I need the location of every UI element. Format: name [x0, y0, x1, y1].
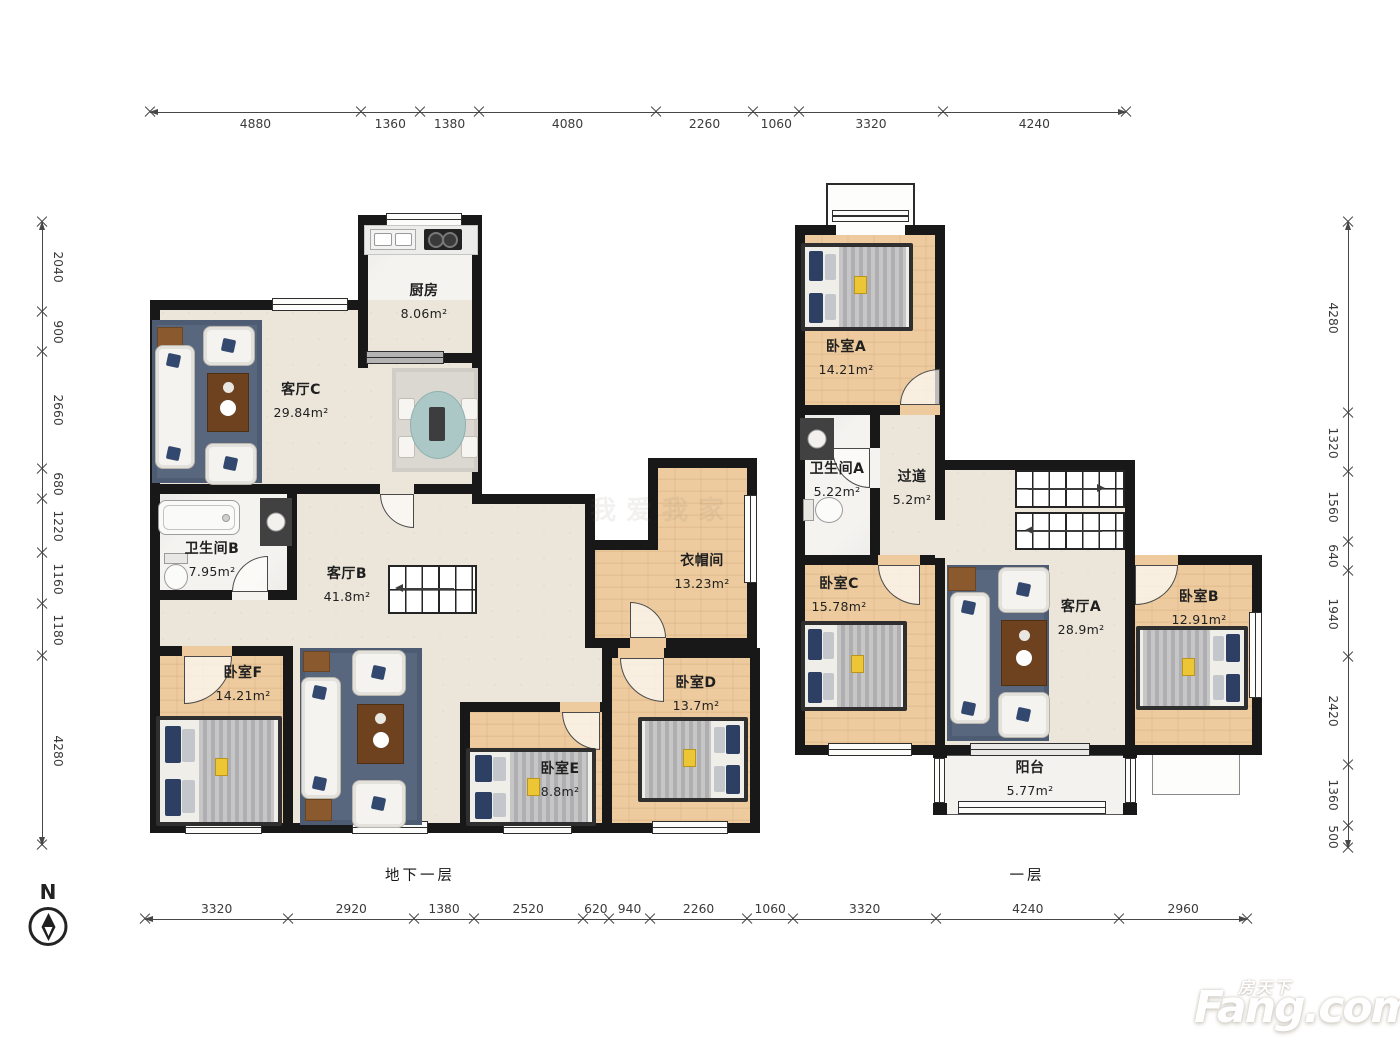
dimension-ruler-top: 48801360138040802260106033204240	[150, 94, 1126, 130]
dimension-tick	[281, 912, 295, 926]
dimension-label: 2040	[51, 251, 65, 282]
coffee-table	[207, 373, 249, 432]
coffee-table	[1001, 620, 1047, 686]
room-label-hallway: 过道5.2m²	[893, 466, 932, 507]
watermark: 我爱我家	[590, 490, 734, 527]
dimension-label: 1380	[428, 902, 459, 916]
sofa	[950, 592, 990, 724]
dimension-label: 900	[51, 320, 65, 343]
dining-table-center	[429, 407, 445, 441]
dimension-label: 2660	[51, 395, 65, 426]
window	[828, 743, 912, 756]
fang-logo: 房天下 Fang.com	[1192, 974, 1398, 1046]
floor-caption-first: 一层	[1010, 864, 1045, 885]
wall	[648, 458, 757, 468]
armchair	[203, 326, 255, 366]
dimension-label: 2520	[512, 902, 543, 916]
balcony-door-window	[970, 743, 1090, 756]
bay-opening	[836, 225, 905, 235]
dimension-tick	[472, 105, 486, 119]
balcony-post	[1123, 747, 1137, 758]
wall	[602, 648, 612, 833]
wall	[1125, 745, 1262, 755]
dimension-tick	[740, 912, 754, 926]
window-pass	[366, 351, 444, 364]
dimension-label: 1060	[755, 902, 786, 916]
wall	[283, 646, 293, 833]
bay-window-sill	[832, 210, 909, 222]
dimension-tick	[35, 597, 49, 611]
wall	[1125, 460, 1135, 755]
dimension-arrow	[1345, 840, 1351, 849]
dimension-label: 4240	[1019, 117, 1050, 131]
door-opening	[182, 646, 232, 656]
balcony-window	[1125, 758, 1136, 803]
bed	[1136, 626, 1248, 710]
dimension-tick	[35, 305, 49, 319]
dimension-tick	[792, 105, 806, 119]
balcony-post	[933, 803, 947, 815]
toilet	[803, 496, 843, 522]
armchair	[998, 692, 1050, 738]
terrace	[1152, 752, 1240, 795]
room-label-bedroom-d: 卧室D13.7m²	[673, 672, 720, 713]
dimension-tick	[413, 105, 427, 119]
dimension-arrow	[144, 916, 153, 922]
wall	[935, 558, 945, 755]
dimension-label: 4280	[1326, 302, 1340, 333]
dimension-line	[150, 112, 1126, 113]
door-opening	[900, 405, 940, 415]
bed	[801, 243, 913, 331]
wall	[585, 638, 757, 648]
room-label-bath-a: 卫生间A5.22m²	[810, 458, 865, 499]
dimension-ruler-right: 428013201560640194024201360500	[1330, 222, 1366, 848]
stair-arrow	[402, 588, 454, 590]
dimension-label: 1360	[1326, 780, 1340, 811]
north-label: N	[26, 880, 70, 904]
dimension-tick	[35, 345, 49, 359]
dimension-tick	[407, 912, 421, 926]
stove	[424, 229, 462, 250]
window	[1249, 612, 1262, 698]
wall	[870, 415, 880, 565]
dimension-tick	[1341, 819, 1355, 833]
dimension-tick	[1341, 758, 1355, 772]
wall	[750, 648, 760, 833]
room-label-bedroom-a: 卧室A14.21m²	[818, 336, 873, 377]
sofa	[155, 345, 195, 469]
dimension-tick	[746, 105, 760, 119]
window	[652, 821, 728, 834]
dimension-arrow	[39, 221, 45, 230]
room-label-cloakroom: 衣帽间13.23m²	[674, 550, 729, 591]
compass-needle-icon	[40, 913, 56, 941]
dimension-label: 4280	[51, 735, 65, 766]
dimension-ruler-left: 204090026606801220116011804280	[24, 222, 60, 845]
dimension-label: 1360	[375, 117, 406, 131]
side-table	[305, 799, 332, 821]
door-opening	[870, 448, 880, 488]
dimension-arrow	[39, 837, 45, 846]
washbasin	[800, 418, 834, 460]
dimension-tick	[1112, 912, 1126, 926]
dimension-tick	[929, 912, 943, 926]
bed	[156, 716, 282, 826]
dining-chair	[461, 436, 478, 458]
bathtub	[158, 500, 240, 535]
dimension-label: 2960	[1167, 902, 1198, 916]
armchair	[998, 567, 1050, 613]
dimension-label: 640	[1326, 544, 1340, 567]
room-label-bedroom-c: 卧室C15.78m²	[811, 573, 866, 614]
dimension-label: 3320	[849, 902, 880, 916]
wall	[150, 590, 297, 600]
dimension-tick	[35, 492, 49, 506]
dimension-label: 1160	[51, 563, 65, 594]
dimension-tick	[649, 105, 663, 119]
dimension-tick	[35, 462, 49, 476]
room-label-bedroom-b: 卧室B12.91m²	[1171, 586, 1226, 627]
dimension-arrow	[1345, 221, 1351, 230]
north-compass: N	[26, 880, 70, 950]
dimension-label: 2260	[683, 902, 714, 916]
room-label-kitchen: 厨房8.06m²	[401, 280, 448, 321]
dimension-label: 1180	[51, 614, 65, 645]
dimension-label: 1940	[1326, 598, 1340, 629]
armchair	[205, 443, 257, 485]
room-label-living-c: 客厅C29.84m²	[273, 379, 328, 420]
window	[272, 298, 348, 311]
dimension-tick	[786, 912, 800, 926]
bed	[638, 717, 748, 802]
dimension-tick	[936, 105, 950, 119]
dimension-tick	[35, 649, 49, 663]
wall	[482, 494, 595, 504]
side-table	[303, 651, 330, 672]
dimension-tick	[354, 105, 368, 119]
door-opening	[630, 638, 666, 648]
window	[744, 495, 757, 583]
dimension-line	[145, 919, 1247, 920]
floor-caption-basement: 地下一层	[385, 864, 455, 885]
balcony-post	[933, 747, 947, 758]
dimension-label: 4080	[552, 117, 583, 131]
bed	[801, 621, 907, 711]
sofa	[301, 677, 341, 799]
dimension-label: 4880	[240, 117, 271, 131]
dimension-ruler-bottom: 3320292013802520620940226010603320424029…	[145, 901, 1247, 937]
dimension-label: 680	[51, 472, 65, 495]
side-table	[948, 567, 976, 591]
dimension-arrow	[149, 109, 158, 115]
dimension-label: 620	[584, 902, 607, 916]
dimension-label: 1320	[1326, 427, 1340, 458]
dimension-label: 500	[1326, 825, 1340, 848]
dimension-label: 1380	[434, 117, 465, 131]
room-label-balcony: 阳台5.77m²	[1007, 757, 1054, 798]
dimension-label: 1220	[51, 510, 65, 541]
balcony-window	[958, 801, 1106, 814]
dimension-tick	[643, 912, 657, 926]
door-opening	[878, 555, 920, 565]
room-label-bedroom-e: 卧室E8.8m²	[540, 758, 579, 799]
dimension-label: 1060	[761, 117, 792, 131]
room-label-living-b: 客厅B41.8m²	[324, 563, 371, 604]
dimension-label: 4240	[1012, 902, 1043, 916]
dimension-tick	[467, 912, 481, 926]
dimension-tick	[1341, 535, 1355, 549]
kitchen-sink	[370, 229, 416, 250]
floor-living-b-west	[150, 600, 297, 646]
floorplan-canvas: 48801360138040802260106033204240 3320292…	[0, 0, 1400, 1050]
wall	[945, 460, 1135, 470]
dimension-label: 3320	[855, 117, 886, 131]
dimension-tick	[1341, 650, 1355, 664]
stair-arrow	[1032, 530, 1102, 532]
door-opening	[1135, 555, 1178, 565]
washbasin	[260, 498, 292, 546]
wall	[795, 555, 945, 565]
dimension-label: 2420	[1326, 695, 1340, 726]
dimension-tick	[1341, 406, 1355, 420]
door-opening	[380, 484, 414, 494]
coffee-table	[357, 704, 404, 764]
dimension-tick	[1341, 563, 1355, 577]
dimension-tick	[35, 546, 49, 560]
dimension-arrow	[1239, 916, 1248, 922]
dimension-label: 1560	[1326, 491, 1340, 522]
door-opening	[560, 702, 600, 712]
balcony-window	[934, 758, 945, 803]
wall	[150, 484, 482, 494]
dimension-label: 2920	[336, 902, 367, 916]
dimension-label: 3320	[201, 902, 232, 916]
room-label-bedroom-f: 卧室F14.21m²	[215, 662, 270, 703]
stair-arrow	[1028, 488, 1098, 490]
dimension-tick	[1341, 465, 1355, 479]
fang-logo-en: Fang.com	[1194, 982, 1400, 1033]
balcony-post	[1123, 803, 1137, 815]
armchair	[352, 780, 406, 828]
compass-circle	[29, 907, 68, 946]
passage-opening	[935, 520, 945, 558]
room-label-bath-b: 卫生间B7.95m²	[185, 538, 240, 579]
armchair	[352, 650, 406, 696]
dimension-label: 940	[618, 902, 641, 916]
dimension-arrow	[1118, 109, 1127, 115]
door-opening	[618, 648, 664, 658]
room-label-living-a: 客厅A28.9m²	[1058, 596, 1105, 637]
dimension-label: 2260	[689, 117, 720, 131]
